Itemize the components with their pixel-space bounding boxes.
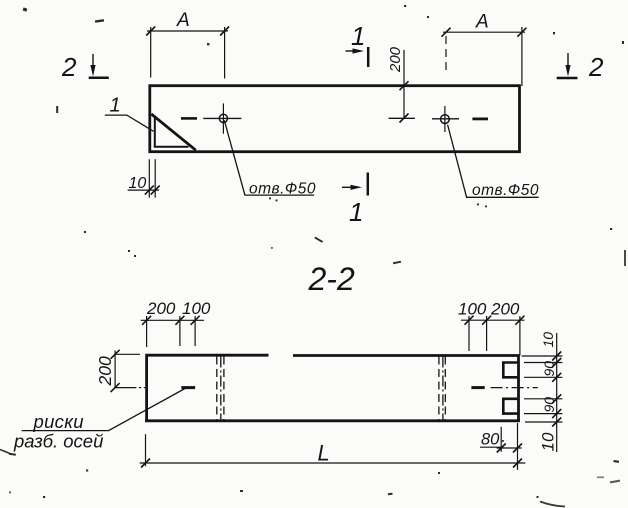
svg-text:100: 100	[182, 299, 211, 318]
svg-text:2: 2	[588, 52, 604, 82]
svg-text:10: 10	[539, 432, 558, 451]
svg-text:90: 90	[541, 361, 557, 377]
svg-text:A: A	[475, 12, 489, 33]
svg-text:разб. осей: разб. осей	[13, 431, 103, 452]
svg-text:2-2: 2-2	[308, 261, 355, 297]
svg-text:риски: риски	[33, 411, 84, 432]
svg-text:90: 90	[541, 397, 557, 413]
svg-text:200: 200	[146, 299, 176, 318]
svg-text:200: 200	[490, 300, 520, 319]
svg-text:отв.Ф50: отв.Ф50	[472, 182, 539, 199]
svg-text:L: L	[318, 441, 330, 466]
svg-text:10: 10	[129, 175, 147, 192]
svg-text:1: 1	[349, 197, 363, 227]
svg-text:1: 1	[110, 95, 121, 117]
svg-text:200: 200	[387, 46, 404, 73]
svg-text:200: 200	[95, 356, 115, 386]
svg-text:отв.Ф50: отв.Ф50	[249, 181, 316, 198]
svg-text:2: 2	[61, 52, 77, 82]
svg-text:80: 80	[481, 431, 500, 449]
svg-text:1: 1	[351, 21, 365, 51]
svg-text:10: 10	[540, 332, 556, 348]
svg-text:A: A	[176, 10, 190, 31]
svg-text:100: 100	[458, 300, 487, 319]
